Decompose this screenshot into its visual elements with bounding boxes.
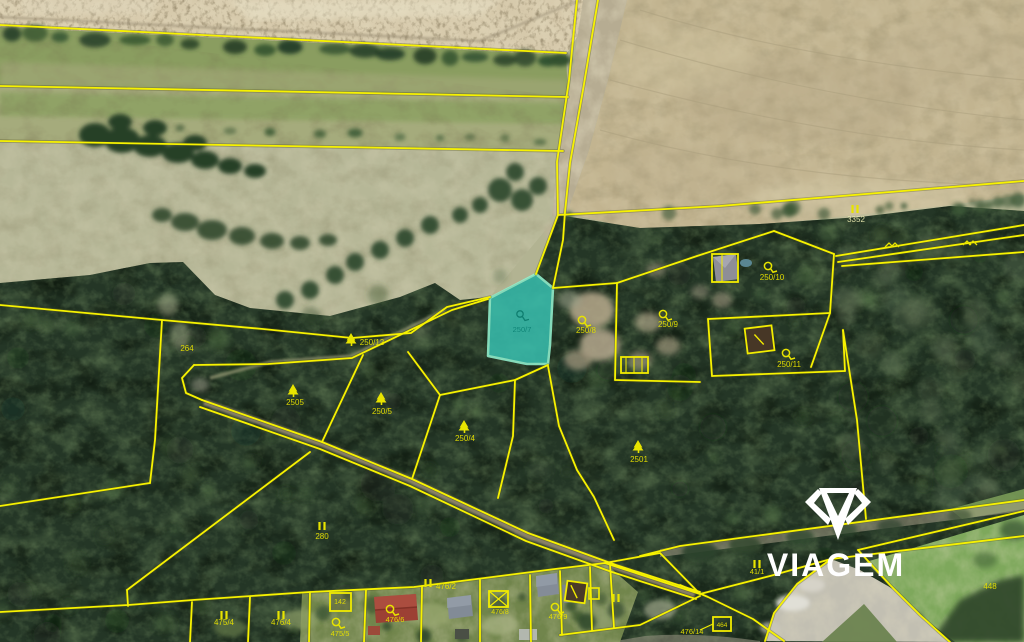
svg-text:41/1: 41/1	[750, 567, 765, 576]
svg-text:250/4: 250/4	[455, 434, 476, 443]
svg-text:250/8: 250/8	[576, 326, 597, 335]
svg-text:476/9: 476/9	[549, 612, 568, 621]
svg-text:475/4: 475/4	[214, 618, 235, 627]
svg-text:3352: 3352	[847, 215, 865, 224]
svg-text:250/7: 250/7	[513, 325, 532, 334]
svg-text:VIAGEM: VIAGEM	[767, 547, 905, 583]
svg-text:476/2: 476/2	[436, 582, 457, 591]
svg-text:2505: 2505	[286, 398, 304, 407]
svg-text:2501: 2501	[630, 455, 648, 464]
svg-text:250/9: 250/9	[658, 320, 679, 329]
svg-text:464: 464	[717, 622, 728, 629]
svg-text:476/14: 476/14	[681, 627, 704, 636]
svg-text:448: 448	[983, 582, 997, 591]
svg-text:250/12: 250/12	[360, 338, 385, 347]
svg-text:475/5: 475/5	[331, 629, 350, 638]
svg-text:250/10: 250/10	[760, 273, 785, 282]
svg-text:250/11: 250/11	[777, 360, 801, 369]
svg-text:142: 142	[334, 599, 346, 606]
svg-text:476/6: 476/6	[386, 615, 405, 624]
svg-text:250/5: 250/5	[372, 407, 393, 416]
svg-text:476/4: 476/4	[271, 618, 292, 627]
svg-text:280: 280	[315, 532, 329, 541]
svg-text:264: 264	[180, 344, 194, 353]
svg-text:476/8: 476/8	[491, 609, 509, 616]
